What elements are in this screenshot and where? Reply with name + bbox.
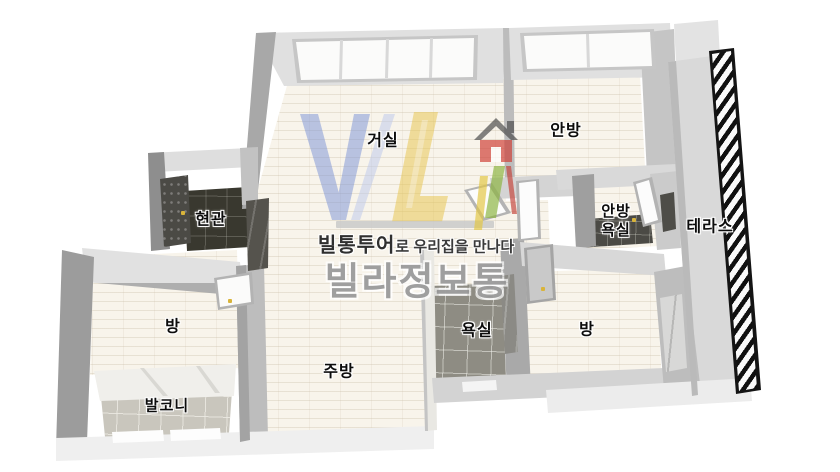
label-entrance: 현관: [195, 211, 226, 230]
label-master-bedroom: 안방: [550, 122, 581, 141]
door-handle-dot: [632, 218, 636, 222]
label-balcony: 발코니: [145, 397, 189, 416]
label-right-room: 방: [579, 321, 595, 340]
floorplan-canvas: 빌통투어로 우리집을 만나다 빌라정보통 거실 안방 현관 안방욕실 테라스 방…: [0, 0, 840, 472]
label-master-bath-line1: 안방: [601, 203, 631, 220]
watermark-brand-name: 빌라정보통: [325, 251, 510, 306]
door-handle-dot: [228, 299, 232, 303]
label-master-bath-line2: 욕실: [601, 222, 631, 239]
label-master-bath: 안방욕실: [601, 202, 631, 240]
label-left-room: 방: [165, 318, 181, 337]
door-handle-dot: [541, 287, 545, 291]
label-bathroom: 욕실: [461, 322, 492, 341]
logo-divider-bar: [336, 221, 494, 228]
door-handle-dot: [181, 211, 185, 215]
label-living-room: 거실: [367, 132, 398, 151]
house-icon: [472, 116, 524, 234]
label-terrace: 테라스: [686, 218, 733, 237]
label-kitchen: 주방: [323, 363, 354, 382]
